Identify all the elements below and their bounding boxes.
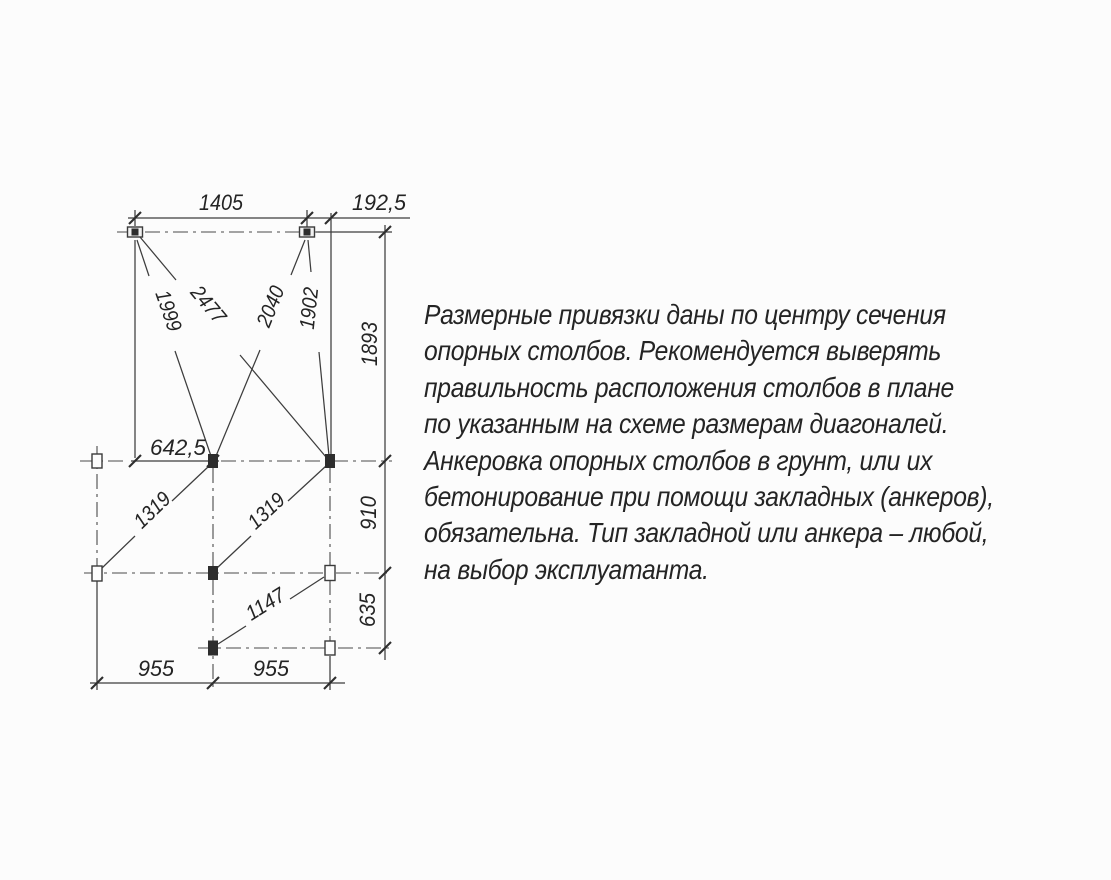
dim-label-right-upper: 1893 bbox=[357, 321, 382, 366]
dim-label-top-span: 1405 bbox=[199, 190, 244, 215]
dim-label-bottom-left: 955 bbox=[138, 656, 175, 681]
post-top-left bbox=[128, 227, 143, 237]
post-row3-left bbox=[92, 566, 102, 581]
diagonal-line bbox=[288, 466, 326, 501]
diagonal-line bbox=[290, 577, 324, 599]
note-line: Размерные привязки даны по центру сечени… bbox=[424, 297, 1040, 333]
note-line: по указанным на схеме размерам диагонале… bbox=[424, 406, 1040, 442]
dimension-labels: 1405 192,5 642,5 955 955 1893 910 635 19… bbox=[129, 190, 406, 681]
dim-label-right-lower: 635 bbox=[355, 592, 380, 627]
note-line: бетонирование при помощи закладных (анке… bbox=[424, 479, 1040, 515]
diagonal-line bbox=[172, 466, 209, 501]
diagonal-line bbox=[240, 355, 326, 457]
note-line: на выбор эксплуатанта. bbox=[424, 552, 1040, 588]
note-text: Размерные привязки даны по центру сечени… bbox=[424, 297, 1040, 588]
post-row3-center bbox=[209, 567, 218, 580]
dim-label-mid-offset: 642,5 bbox=[150, 435, 207, 460]
diagonal-line bbox=[319, 352, 329, 456]
post-row4-right bbox=[325, 641, 335, 655]
post-mid-right bbox=[326, 455, 335, 468]
dim-label-diagonal-2477: 2477 bbox=[185, 281, 231, 330]
dim-label-diagonal-1319-left: 1319 bbox=[129, 487, 175, 533]
note-line: опорных столбов. Рекомендуется выверять bbox=[424, 333, 1040, 369]
note-line: Анкеровка опорных столбов в грунт, или и… bbox=[424, 443, 1040, 479]
dim-label-diagonal-1319-right: 1319 bbox=[243, 488, 290, 534]
dim-label-diagonal-1147: 1147 bbox=[242, 583, 291, 625]
diagonal-line bbox=[291, 240, 305, 275]
page: 1405 192,5 642,5 955 955 1893 910 635 19… bbox=[0, 0, 1111, 880]
note-line: правильность расположения столбов в план… bbox=[424, 370, 1040, 406]
dim-label-diagonal-1999: 1999 bbox=[150, 287, 186, 334]
post-top-right bbox=[300, 227, 315, 237]
diagonal-line bbox=[140, 237, 176, 280]
dim-label-diagonal-1902: 1902 bbox=[296, 286, 323, 330]
diagonal-line bbox=[217, 536, 251, 568]
post-mid-left bbox=[92, 454, 102, 468]
dim-label-top-right-offset: 192,5 bbox=[352, 190, 407, 215]
dim-label-diagonal-2040: 2040 bbox=[252, 283, 290, 332]
dim-label-right-middle: 910 bbox=[356, 495, 381, 530]
centerlines bbox=[80, 232, 392, 690]
diagonal-line bbox=[308, 240, 311, 272]
note-line: обязательна. Тип закладной или анкера – … bbox=[424, 515, 1040, 551]
dim-label-bottom-right: 955 bbox=[253, 656, 290, 681]
diagonal-line bbox=[102, 536, 135, 568]
diagonal-line bbox=[216, 350, 260, 456]
post-row3-right bbox=[325, 566, 335, 581]
dimension-ticks bbox=[91, 212, 391, 689]
post-mid-center bbox=[209, 455, 218, 468]
post-row4-center bbox=[209, 641, 218, 655]
diagonal-line bbox=[218, 626, 246, 644]
